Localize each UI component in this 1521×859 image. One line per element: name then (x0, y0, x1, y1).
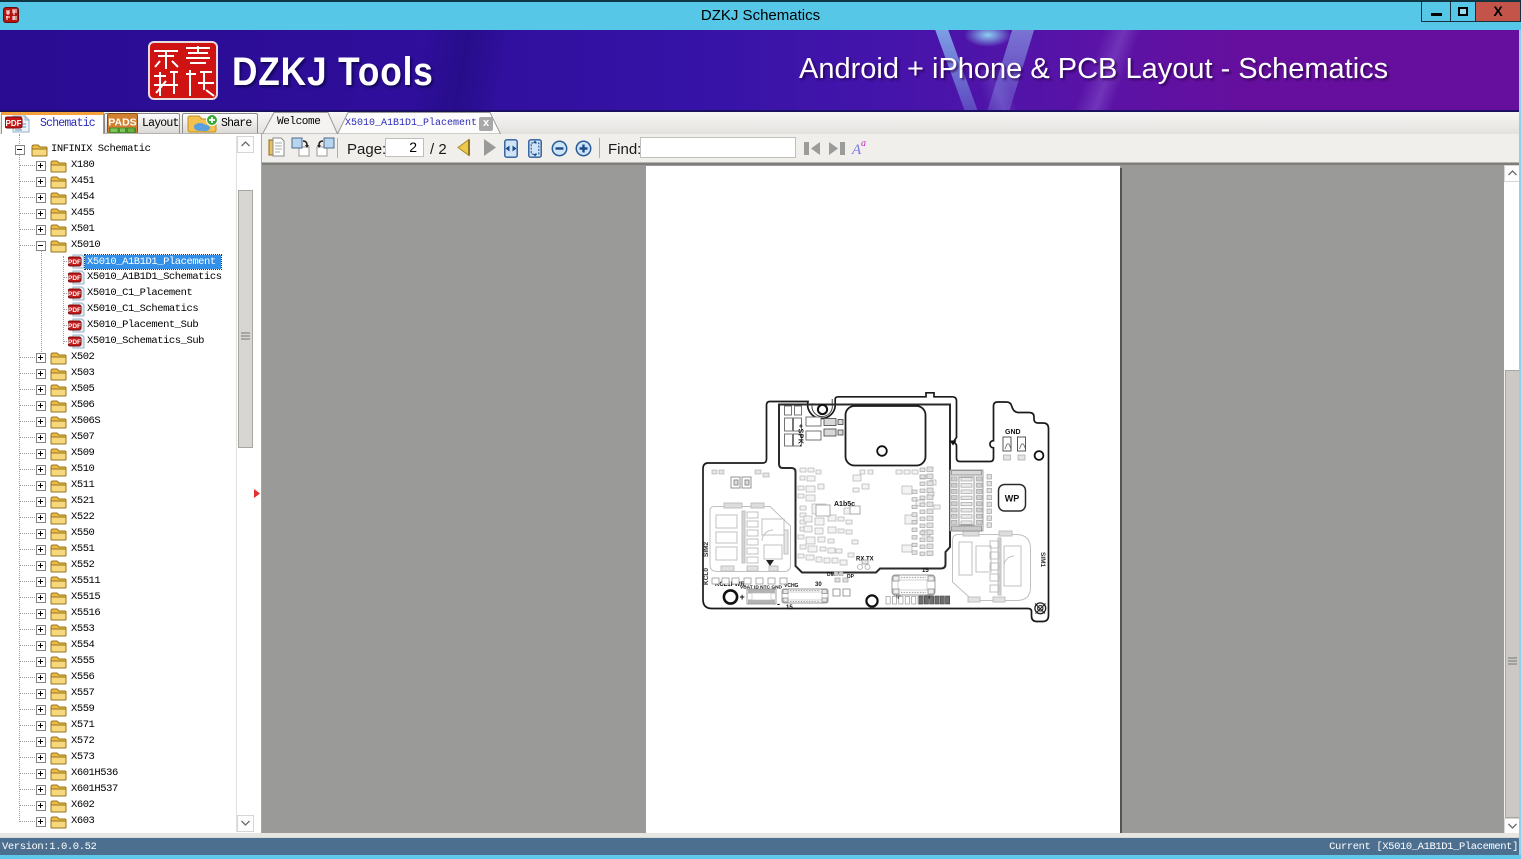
svg-text:a: a (861, 138, 866, 149)
svg-text:+SPK-: +SPK- (797, 424, 804, 447)
svg-text:15: 15 (786, 605, 793, 611)
svg-text:KCL0: KCL0 (703, 568, 710, 585)
svg-text:SIM1: SIM1 (1039, 552, 1046, 568)
svg-text:SIM2: SIM2 (703, 541, 710, 557)
svg-text:GND: GND (1005, 429, 1021, 436)
svg-text:PDF: PDF (68, 275, 81, 282)
svg-text:30: 30 (815, 582, 822, 588)
svg-text:DM: DM (827, 572, 835, 578)
svg-text:PADS: PADS (108, 117, 136, 129)
svg-text:15: 15 (922, 568, 929, 574)
svg-text:PDF: PDF (68, 259, 81, 266)
svg-text:PDF: PDF (68, 291, 81, 298)
svg-text:PDF: PDF (68, 323, 81, 330)
svg-text:PDF: PDF (68, 339, 81, 346)
svg-text:PDF: PDF (68, 307, 81, 314)
svg-text:+: + (740, 592, 745, 602)
svg-text:PDF: PDF (6, 119, 22, 128)
svg-text:WP: WP (1005, 494, 1020, 504)
svg-text:-: - (777, 599, 780, 609)
